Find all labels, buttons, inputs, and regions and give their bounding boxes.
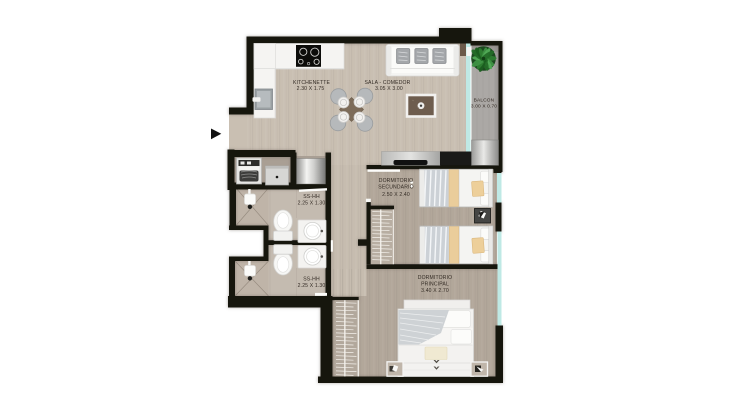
svg-text:2.25 X 1.30: 2.25 X 1.30 xyxy=(298,201,326,207)
svg-text:2.30 X 1.75: 2.30 X 1.75 xyxy=(297,86,325,92)
svg-text:PRINCIPAL: PRINCIPAL xyxy=(421,282,449,288)
svg-text:SS-HH: SS-HH xyxy=(303,194,320,200)
svg-text:DORMITORIO: DORMITORIO xyxy=(379,178,414,184)
svg-text:DORMITORIO: DORMITORIO xyxy=(418,275,453,281)
svg-text:2.50 X 2.40: 2.50 X 2.40 xyxy=(382,192,410,198)
svg-text:3.00 X 0.70: 3.00 X 0.70 xyxy=(471,104,497,110)
svg-text:SS-HH: SS-HH xyxy=(303,277,320,283)
svg-text:SECUNDARIO: SECUNDARIO xyxy=(378,185,413,191)
svg-text:3.40 X 2.70: 3.40 X 2.70 xyxy=(421,288,449,294)
svg-text:3.05 X 3.00: 3.05 X 3.00 xyxy=(375,86,403,92)
svg-text:BALCON: BALCON xyxy=(474,98,495,104)
svg-text:2.25 X 1.30: 2.25 X 1.30 xyxy=(298,283,326,289)
